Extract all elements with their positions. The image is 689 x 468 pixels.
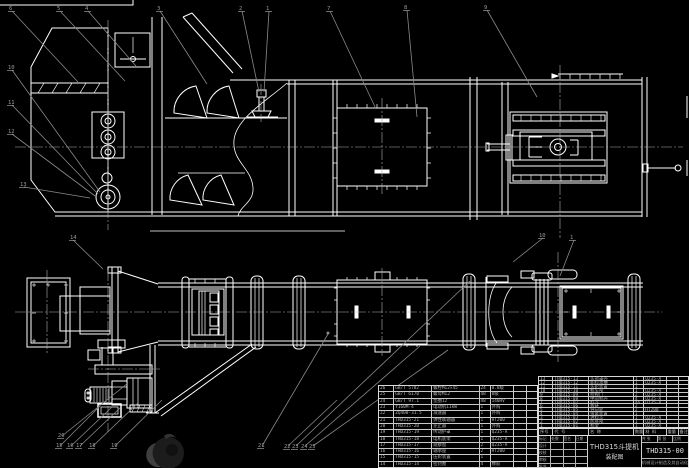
bom-cell: 密封圈 <box>431 462 478 467</box>
callout-number: 23 <box>292 444 299 450</box>
callout-number: 10 <box>539 233 546 239</box>
drawing-number-cell: 共 张第 张比例 THD315-00 机械设计制造及其自动化 <box>642 436 688 467</box>
bom-cell: 4 <box>479 462 490 467</box>
bom-cell <box>678 424 688 427</box>
product-name: THD315斗提机 <box>590 442 639 452</box>
signature-cell <box>550 464 562 468</box>
bom-cell: 机架 <box>588 424 633 427</box>
callout-number: 2 <box>239 6 242 12</box>
callout-number: 15 <box>56 443 63 449</box>
title-block: 标记处数签名日期设计校核审核批准 THD315斗提机 装配图 共 张第 张比例 … <box>538 435 689 468</box>
leader-lines <box>12 10 574 446</box>
callout-number: 17 <box>76 443 83 449</box>
callout-layer: 6543217891011121314201516171819212223242… <box>7 5 576 450</box>
callout-number: 1 <box>570 235 573 241</box>
sheet-info-row: 共 张第 张比例 <box>642 436 688 443</box>
signature-cell: 批准 <box>539 464 550 468</box>
callout-number: 21 <box>258 443 265 449</box>
callout-number: 19 <box>111 443 118 449</box>
bom-cell <box>526 462 537 467</box>
bom-cell <box>513 462 526 467</box>
callout-number: 1 <box>266 6 269 12</box>
bom-table-left: 26GB/T 5782螺栓M12×45248.8级25GB/T 6170螺母M1… <box>378 385 538 468</box>
bom-cell: 1 <box>539 424 552 427</box>
signature-row: 设计 <box>539 442 587 449</box>
callout-number: 16 <box>67 443 74 449</box>
callout-number: 12 <box>8 129 15 135</box>
callout-number: 11 <box>8 100 15 106</box>
callout-number: 24 <box>301 444 308 450</box>
callout-number: 10 <box>8 65 15 71</box>
drawing-frame <box>0 0 687 176</box>
sheet-info-cell: 共 张 <box>642 436 657 442</box>
callout-number: 20 <box>58 433 65 439</box>
org-line: 机械设计制造及其自动化 <box>642 458 688 467</box>
bom-cell: THD315-14 <box>393 462 431 467</box>
bom-cell <box>666 424 678 427</box>
signature-grid: 标记处数签名日期设计校核审核批准 <box>539 436 588 467</box>
signature-row: 审核 <box>539 456 587 463</box>
signature-row: 校核 <box>539 449 587 456</box>
sheet-info-cell: 第 张 <box>657 436 673 442</box>
callout-number: 7 <box>327 6 330 12</box>
centerlines <box>15 20 683 432</box>
callout-number: 14 <box>70 235 77 241</box>
bom-row: 14THD315-14密封圈4橡胶 <box>379 461 537 467</box>
bom-cell: 14 <box>379 462 393 467</box>
callout-number: 22 <box>284 444 291 450</box>
callout-number: 25 <box>309 444 316 450</box>
callout-number: 8 <box>404 5 407 11</box>
bom-cell: Q235-A <box>643 424 665 427</box>
sheet-info-cell: 比例 <box>672 436 688 442</box>
bom-row: 1THD315-01机架1Q235-A <box>539 423 688 427</box>
bom-table-right: 13THD315-13头部罩壳1Q235-A12THD315-12卸料溜槽1Q2… <box>538 376 689 428</box>
callout-number: 9 <box>484 5 487 11</box>
signature-row: 批准 <box>539 463 587 468</box>
bom-cell: 橡胶 <box>490 462 514 467</box>
watermark-logo <box>146 434 184 468</box>
callout-number: 5 <box>57 6 60 12</box>
drawing-title-cell: THD315斗提机 装配图 <box>588 436 642 467</box>
callout-number: 6 <box>9 6 12 12</box>
drawing-number: THD315-00 <box>642 443 688 458</box>
callout-number: 18 <box>89 443 96 449</box>
callout-number: 3 <box>157 6 160 12</box>
cad-viewport: 6543217891011121314201516171819212223242… <box>0 0 689 468</box>
doc-type: 装配图 <box>605 452 623 461</box>
callout-number: 13 <box>20 182 27 188</box>
signature-cell <box>563 464 575 468</box>
bom-cell: 1 <box>633 424 643 427</box>
bom-cell: THD315-01 <box>552 424 588 427</box>
top-view <box>31 13 681 231</box>
signature-cell <box>575 464 587 468</box>
